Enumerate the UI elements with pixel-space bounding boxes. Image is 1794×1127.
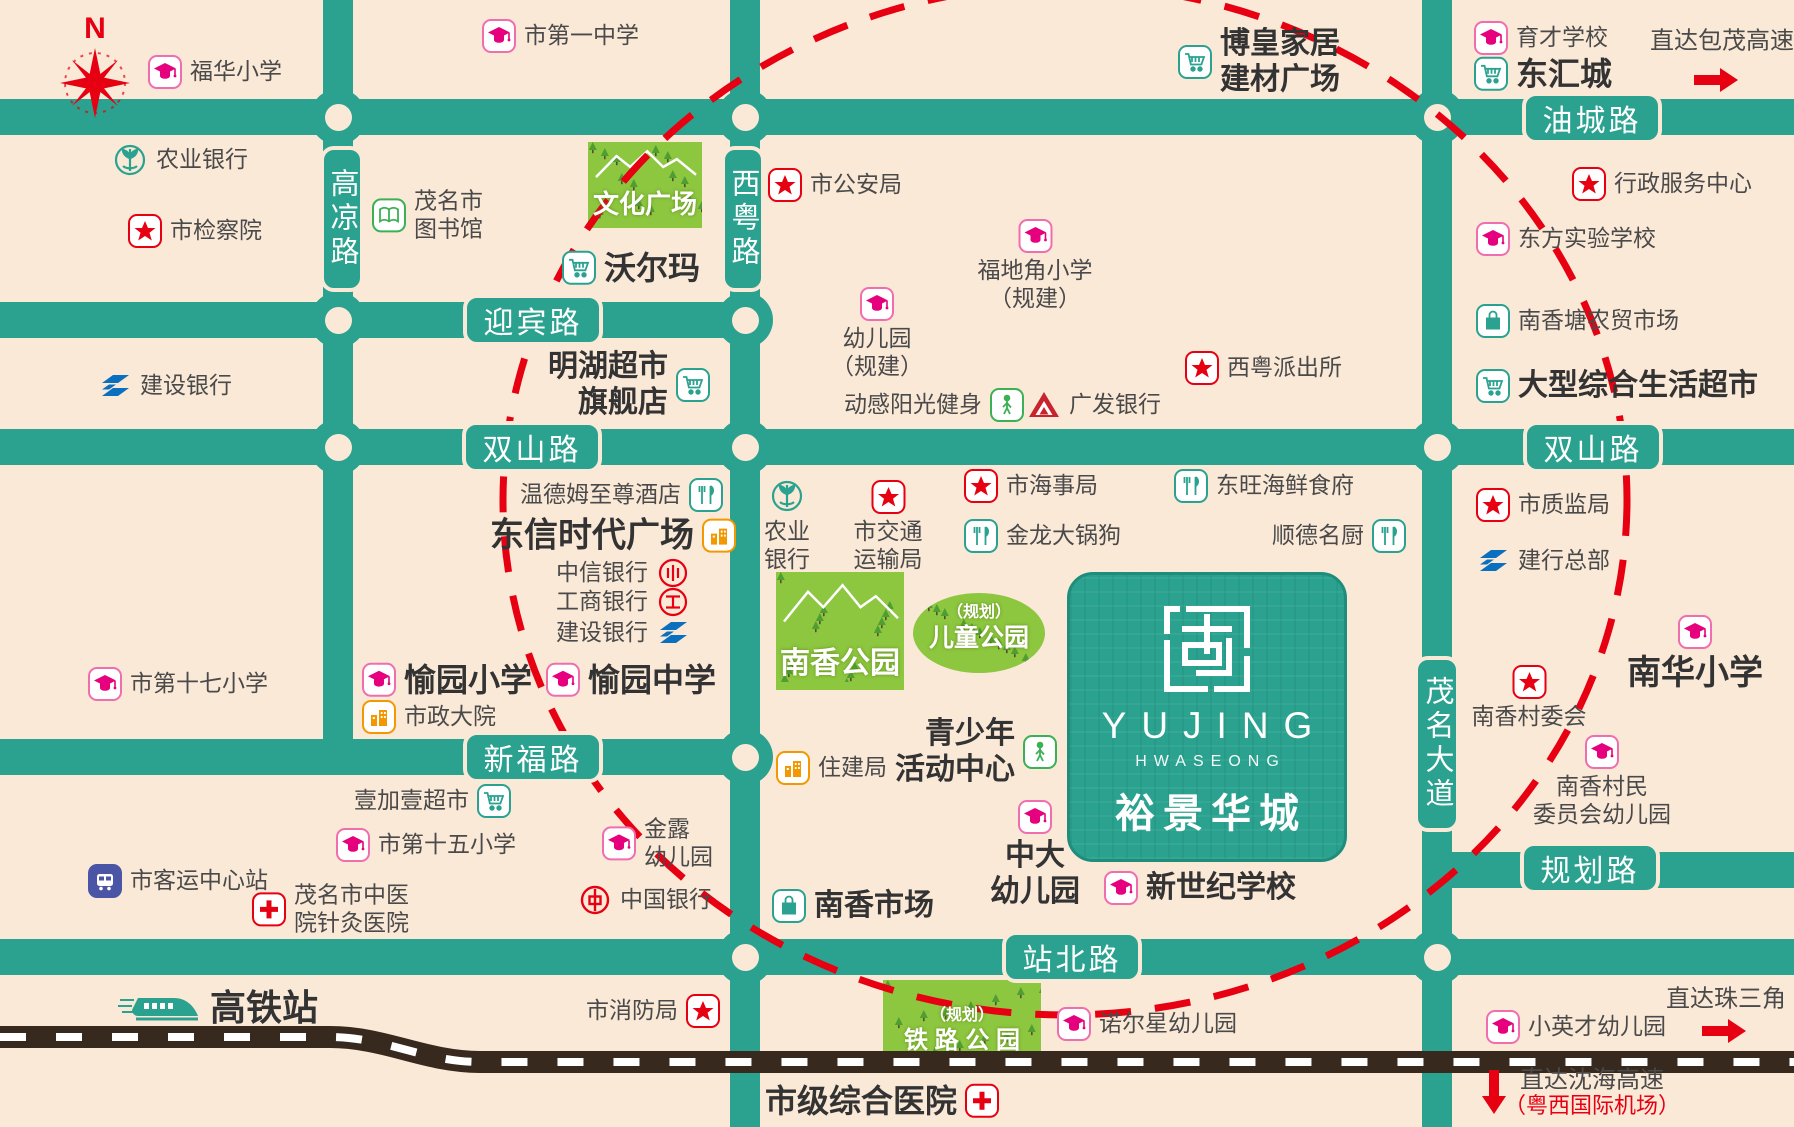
- road-junction: [1409, 89, 1465, 145]
- bus-icon: [88, 864, 122, 898]
- road-junction: [310, 292, 366, 348]
- poi-passenger-station: 市客运中心站: [88, 864, 268, 898]
- poi-label: 茂名市: [414, 187, 483, 215]
- road-junction: [717, 929, 773, 985]
- school-icon: [88, 667, 122, 701]
- note-yuexi-airport: （粤西国际机场）: [1504, 1093, 1680, 1119]
- road-badge-西粤路: 西粤路: [721, 146, 765, 292]
- cart-icon: [1178, 45, 1212, 79]
- poi-label: 南香塘农贸市场: [1518, 307, 1679, 335]
- yujing-seal-icon: [1159, 601, 1255, 697]
- poi-label: 新世纪学校: [1146, 870, 1296, 906]
- school-icon: [1476, 222, 1510, 256]
- poi-maritime-bureau: 市海事局: [964, 469, 1098, 503]
- park-label: （规划）: [930, 1006, 994, 1026]
- road-新福路: [0, 739, 760, 775]
- location-map: N 文化广场南香公园（规划）儿童公园（规划）铁 路 公 园 YUJING HWA…: [0, 0, 1794, 1127]
- school-icon: [1104, 871, 1138, 905]
- road-junction: [717, 729, 773, 785]
- cart-icon: [477, 784, 511, 818]
- poi-label: 行政服务中心: [1614, 170, 1752, 198]
- poi-tcm-acupuncture-hospital: 茂名市中医院针灸医院: [252, 881, 409, 936]
- building-icon: [362, 700, 396, 734]
- poi-yuyuan-primary: 愉园小学: [362, 661, 532, 699]
- poi-walmart: 沃尔玛: [562, 249, 700, 287]
- poi-label: 沃尔玛: [604, 249, 700, 287]
- poi-public-security-bureau: 市公安局: [768, 168, 902, 202]
- culture-square-park: 文化广场: [588, 142, 702, 228]
- school-icon: [482, 19, 516, 53]
- person-icon: [1023, 735, 1057, 769]
- road-junction: [1409, 419, 1465, 475]
- project-name-cn: 裕景华城: [1107, 781, 1307, 839]
- poi-label: 市客运中心站: [130, 867, 268, 895]
- poi-label: 建材广场: [1220, 62, 1340, 98]
- poi-yijiayi-supermarket: 壹加壹超市: [354, 784, 511, 818]
- road-badge-高凉路: 高凉路: [320, 146, 364, 292]
- poi-label: 金露: [644, 815, 713, 843]
- road-迎宾路: [0, 302, 760, 338]
- compass: N: [58, 12, 132, 120]
- poi-label: 温德姆至尊酒店: [520, 481, 681, 509]
- poi-nanxiang-village-committee: 南香村委会: [1472, 665, 1587, 731]
- poi-label: 旗舰店: [578, 385, 668, 421]
- road-站北路: [0, 939, 1794, 975]
- poi-label: 明湖超市: [548, 349, 668, 385]
- arrow-right-icon: [1692, 64, 1738, 96]
- poi-large-supermarket: 大型综合生活超市: [1476, 368, 1758, 404]
- poi-label: 广发银行: [1069, 391, 1161, 419]
- poi-icbc-bank: 工商银行: [556, 585, 690, 619]
- poi-cgb-bank: 广发银行: [1027, 388, 1161, 422]
- school-icon: [148, 55, 182, 89]
- school-icon: [1018, 800, 1052, 834]
- poi-fuhua-primary: 福华小学: [148, 55, 282, 89]
- school-icon: [336, 828, 370, 862]
- poi-label: 建设银行: [140, 372, 232, 400]
- star-icon: [768, 168, 802, 202]
- poi-label: 农业银行: [156, 146, 248, 174]
- poi-jinlu-kindergarten: 金露幼儿园: [602, 815, 713, 870]
- poi-label: 金龙大锅狗: [1006, 522, 1121, 550]
- poi-label: 东方实验学校: [1518, 225, 1656, 253]
- road-badge-站北路: 站北路: [1002, 931, 1142, 983]
- bag-icon: [772, 889, 806, 923]
- poi-xiyue-police-station: 西粤派出所: [1185, 351, 1342, 385]
- poi-dongwang-seafood: 东旺海鲜食府: [1174, 469, 1354, 503]
- poi-label: 建行总部: [1518, 547, 1610, 575]
- road-badge-茂名大道: 茂名大道: [1414, 656, 1460, 832]
- poi-wyndham-hotel: 温德姆至尊酒店: [520, 478, 723, 512]
- poi-housing-bureau: 住建局: [776, 751, 887, 785]
- poi-label: 诺尔星幼儿园: [1099, 1010, 1237, 1038]
- poi-yuyuan-middle: 愉园中学: [546, 661, 716, 699]
- poi-label: （粤西国际机场）: [1504, 1093, 1680, 1119]
- poi-nanxiang-market: 南香市场: [772, 888, 934, 924]
- poi-label: 南香村民: [1556, 773, 1648, 801]
- poi-jinlong-restaurant: 金龙大锅狗: [964, 519, 1121, 553]
- poi-label: 青少年: [925, 716, 1015, 752]
- poi-municipal-compound: 市政大院: [362, 700, 496, 734]
- star-icon: [871, 480, 905, 514]
- compass-north-label: N: [84, 12, 106, 46]
- poi-ccb-bank-1: 建设银行: [98, 369, 232, 403]
- poi-bohuang-home-plaza: 博皇家居建材广场: [1178, 26, 1340, 98]
- note-pearl-delta: 直达珠三角: [1666, 986, 1786, 1015]
- poi-label: 住建局: [818, 754, 887, 782]
- poi-yucai-school: 育才学校: [1474, 21, 1608, 55]
- poi-label: 幼儿园: [644, 843, 713, 871]
- poi-label: 直达包茂高速: [1650, 28, 1794, 57]
- poi-label: 市交通: [854, 518, 923, 546]
- poi-label: 南香村委会: [1472, 703, 1587, 731]
- school-icon: [1057, 1007, 1091, 1041]
- poi-label: 中信银行: [556, 559, 648, 587]
- poi-label: 农业: [764, 518, 810, 546]
- poi-abc-bank-2: 农业银行: [764, 478, 810, 573]
- icbc-icon: [656, 585, 690, 619]
- poi-label: 市检察院: [170, 217, 262, 245]
- star-icon: [964, 469, 998, 503]
- rest-icon: [689, 478, 723, 512]
- school-icon: [1486, 1010, 1520, 1044]
- ccb-icon: [98, 369, 132, 403]
- poi-label: 市级综合医院: [765, 1082, 957, 1120]
- arrow-right-icon: [1700, 1015, 1746, 1047]
- poi-label: 动感阳光健身: [844, 391, 982, 419]
- star-icon: [1572, 167, 1606, 201]
- school-icon: [362, 663, 396, 697]
- bag-icon: [1476, 304, 1510, 338]
- road-badge-迎宾路: 迎宾路: [463, 294, 603, 346]
- park-label: （规划）: [947, 603, 1011, 623]
- poi-label: 直达沈海高速: [1520, 1067, 1664, 1096]
- note-baomao-expressway: 直达包茂高速: [1650, 28, 1794, 57]
- ccb-icon: [1476, 544, 1510, 578]
- project-name-sub: HWASEONG: [1128, 753, 1286, 771]
- poi-label: 福华小学: [190, 58, 282, 86]
- poi-label: 育才学校: [1516, 24, 1608, 52]
- poi-label: 东汇城: [1516, 55, 1612, 93]
- poi-label: 西粤派出所: [1227, 354, 1342, 382]
- poi-label: 市消防局: [586, 997, 678, 1025]
- poi-village-kindergarten: 南香村民委员会幼儿园: [1533, 735, 1671, 828]
- poi-label: 建设银行: [556, 619, 648, 647]
- poi-label: 东旺海鲜食府: [1216, 472, 1354, 500]
- poi-label: （规建）: [989, 285, 1081, 313]
- cart-icon: [562, 251, 596, 285]
- road-junction: [1409, 929, 1465, 985]
- poi-label: 幼儿园: [843, 325, 912, 353]
- park-label: 儿童公园: [929, 623, 1029, 654]
- cgb-icon: [1027, 388, 1061, 422]
- poi-label: 幼儿园: [990, 874, 1080, 910]
- nanxiang-park: 南香公园: [776, 572, 904, 690]
- poi-nanxiangtang-market: 南香塘农贸市场: [1476, 304, 1679, 338]
- cross-icon: [965, 1084, 999, 1118]
- note-shenhai-expressway: 直达沈海高速: [1520, 1067, 1664, 1096]
- school-icon: [1585, 735, 1619, 769]
- poi-fire-bureau: 市消防局: [586, 994, 720, 1028]
- park-label: 文化广场: [593, 188, 697, 221]
- road-badge-新福路: 新福路: [463, 731, 603, 783]
- poi-high-speed-rail-station: 高铁站: [118, 986, 318, 1030]
- abc-icon: [769, 478, 805, 514]
- poi-label: 图书馆: [414, 215, 483, 243]
- road-junction: [310, 419, 366, 475]
- school-icon: [1018, 219, 1052, 253]
- poi-label: 中大: [1005, 838, 1065, 874]
- star-icon: [686, 994, 720, 1028]
- poi-nuoerxing-kindergarten: 诺尔星幼儿园: [1057, 1007, 1237, 1041]
- boc-icon: [578, 883, 612, 917]
- star-icon: [1512, 665, 1546, 699]
- poi-label: 南香市场: [814, 888, 934, 924]
- rest-icon: [1174, 469, 1208, 503]
- ccb-icon: [656, 616, 690, 650]
- poi-label: 运输局: [854, 546, 923, 574]
- poi-label: 愉园中学: [588, 661, 716, 699]
- road-junction: [310, 89, 366, 145]
- poi-label: （规建）: [831, 353, 923, 381]
- poi-label: 市第十五小学: [378, 831, 516, 859]
- poi-donghui-city: 东汇城: [1474, 55, 1612, 93]
- poi-label: 壹加壹超市: [354, 787, 469, 815]
- poi-xiaoyingcai-kindergarten: 小英才幼儿园: [1486, 1010, 1666, 1044]
- poi-quality-bureau: 市质监局: [1476, 488, 1610, 522]
- school-icon: [602, 826, 636, 860]
- poi-kindergarten-planned: 幼儿园（规建）: [831, 287, 923, 380]
- poi-label: 委员会幼儿园: [1533, 801, 1671, 829]
- poi-label: 大型综合生活超市: [1518, 368, 1758, 404]
- poi-minghu-supermarket: 明湖超市旗舰店: [548, 349, 710, 421]
- poi-admin-service-center: 行政服务中心: [1572, 167, 1752, 201]
- train-icon: [118, 986, 202, 1030]
- children-park-planned: （规划）儿童公园: [913, 593, 1045, 673]
- road-junction: [717, 89, 773, 145]
- building-icon: [776, 751, 810, 785]
- poi-dongfang-experimental-school: 东方实验学校: [1476, 222, 1656, 256]
- rest-icon: [1372, 519, 1406, 553]
- poi-label: 直达珠三角: [1666, 986, 1786, 1015]
- poi-label: 茂名市中医: [294, 881, 409, 909]
- poi-abc-bank-1: 农业银行: [112, 142, 248, 178]
- poi-label: 工商银行: [556, 588, 648, 616]
- poi-label: 愉园小学: [404, 661, 532, 699]
- cart-icon: [1474, 57, 1508, 91]
- poi-label: 市公安局: [810, 171, 902, 199]
- arrow-baomao: [1692, 64, 1738, 96]
- poi-label: 中国银行: [620, 886, 712, 914]
- school-icon: [860, 287, 894, 321]
- poi-label: 市海事局: [1006, 472, 1098, 500]
- building-icon: [702, 519, 736, 553]
- road-badge-双山路: 双山路: [1523, 421, 1663, 473]
- poi-fudijiao-primary-planned: 福地角小学（规建）: [978, 219, 1093, 312]
- poi-ccb-headquarters: 建行总部: [1476, 544, 1610, 578]
- poi-no1-middle-school: 市第一中学: [482, 19, 639, 53]
- poi-label: 南华小学: [1627, 653, 1763, 694]
- project-name-en: YUJING: [1087, 705, 1328, 747]
- person-icon: [990, 388, 1024, 422]
- railway-park-planned: （规划）铁 路 公 园: [883, 980, 1041, 1064]
- poi-label: 银行: [764, 546, 810, 574]
- poi-label: 高铁站: [210, 986, 318, 1029]
- poi-label: 福地角小学: [978, 257, 1093, 285]
- school-icon: [546, 663, 580, 697]
- poi-city-general-hospital: 市级综合医院: [765, 1082, 999, 1120]
- poi-new-century-school: 新世纪学校: [1104, 870, 1296, 906]
- road-badge-油城路: 油城路: [1522, 92, 1662, 144]
- poi-transport-bureau: 市交通运输局: [854, 480, 923, 573]
- road-junction: [717, 419, 773, 475]
- poi-label: 顺德名厨: [1272, 522, 1364, 550]
- poi-dongxin-plaza: 东信时代广场: [490, 516, 736, 557]
- poi-no17-primary: 市第十七小学: [88, 667, 268, 701]
- poi-label: 市第十七小学: [130, 670, 268, 698]
- cross-icon: [252, 892, 286, 926]
- park-label: 铁 路 公 园: [904, 1026, 1020, 1056]
- school-icon: [1678, 615, 1712, 649]
- star-icon: [128, 214, 162, 248]
- road-badge-双山路: 双山路: [462, 421, 602, 473]
- road-badge-规划路: 规划路: [1520, 842, 1660, 894]
- poi-label: 东信时代广场: [490, 516, 694, 557]
- poi-maoming-library: 茂名市图书馆: [372, 187, 483, 242]
- arrow-pearl-delta: [1700, 1015, 1746, 1047]
- poi-label: 市政大院: [404, 703, 496, 731]
- park-label: 南香公园: [780, 645, 900, 683]
- star-icon: [1476, 488, 1510, 522]
- poi-donggan-gym: 动感阳光健身: [844, 388, 1024, 422]
- school-icon: [1474, 21, 1508, 55]
- poi-label: 市质监局: [1518, 491, 1610, 519]
- compass-rose-icon: [58, 46, 132, 120]
- poi-ccb-bank-2: 建设银行: [556, 616, 690, 650]
- poi-procuratorate: 市检察院: [128, 214, 262, 248]
- poi-bank-of-china: 中国银行: [578, 883, 712, 917]
- star-icon: [1185, 351, 1219, 385]
- abc-icon: [112, 142, 148, 178]
- poi-zhongda-kindergarten: 中大幼儿园: [990, 800, 1080, 910]
- poi-nanhua-primary: 南华小学: [1627, 615, 1763, 694]
- poi-youth-activity-center: 青少年活动中心: [895, 716, 1057, 788]
- poi-label: 小英才幼儿园: [1528, 1013, 1666, 1041]
- poi-label: 市第一中学: [524, 22, 639, 50]
- cart-icon: [1476, 369, 1510, 403]
- poi-no15-primary: 市第十五小学: [336, 828, 516, 862]
- book-icon: [372, 198, 406, 232]
- poi-label: 活动中心: [895, 752, 1015, 788]
- yujing-hwaseong-project-block: YUJING HWASEONG 裕景华城: [1067, 572, 1347, 862]
- poi-label: 博皇家居: [1220, 26, 1340, 62]
- rest-icon: [964, 519, 998, 553]
- poi-label: 院针灸医院: [294, 909, 409, 937]
- poi-shunde-chef: 顺德名厨: [1272, 519, 1406, 553]
- cart-icon: [676, 368, 710, 402]
- road-junction: [717, 292, 773, 348]
